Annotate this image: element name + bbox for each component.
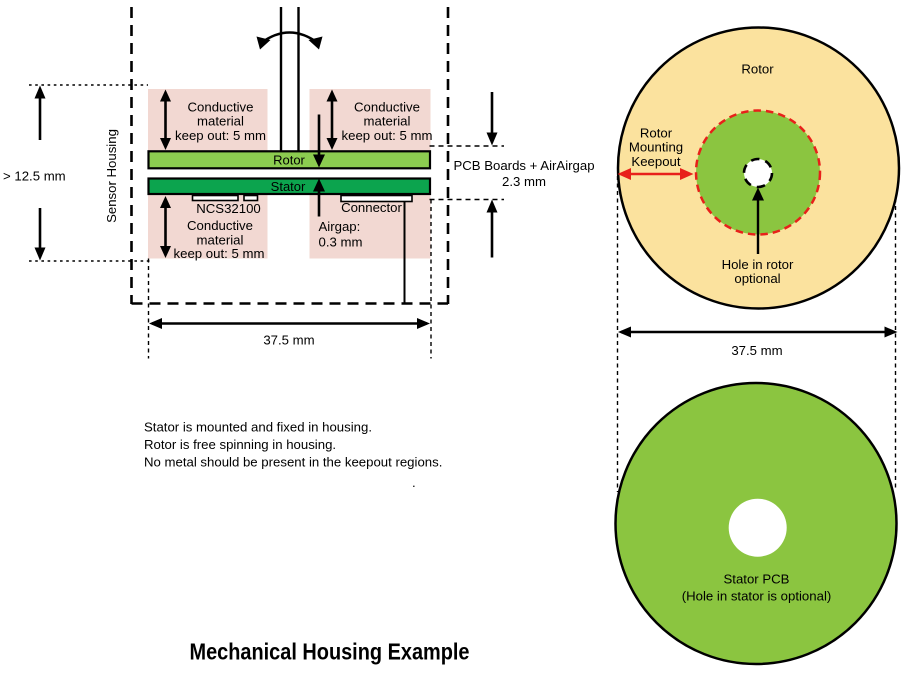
svg-text:Conductive: Conductive xyxy=(188,99,254,114)
svg-text:0.3 mm: 0.3 mm xyxy=(319,235,363,250)
svg-text:NCS32100: NCS32100 xyxy=(196,201,261,216)
svg-text:2.3 mm: 2.3 mm xyxy=(502,174,546,189)
svg-text:37.5 mm: 37.5 mm xyxy=(263,333,314,348)
svg-text:Stator is mounted and fixed in: Stator is mounted and fixed in housing. xyxy=(144,420,372,435)
svg-text:optional: optional xyxy=(734,271,780,286)
svg-text:> 12.5 mm: > 12.5 mm xyxy=(3,169,66,184)
svg-text:Stator: Stator xyxy=(271,179,306,194)
svg-text:material: material xyxy=(197,232,244,247)
svg-text:material: material xyxy=(197,114,244,129)
svg-text:Rotor: Rotor xyxy=(640,126,673,141)
svg-text:PCB Boards + AirAirgap: PCB Boards + AirAirgap xyxy=(453,158,594,173)
svg-text:Rotor: Rotor xyxy=(273,152,305,167)
svg-text:Keepout: Keepout xyxy=(631,154,680,169)
svg-text:Hole in rotor: Hole in rotor xyxy=(722,257,794,272)
svg-text:Connector: Connector xyxy=(341,200,402,215)
svg-text:Mechanical Housing Example: Mechanical Housing Example xyxy=(190,639,470,665)
svg-text:Mounting: Mounting xyxy=(629,140,683,155)
svg-text:keep out: 5 mm: keep out: 5 mm xyxy=(174,246,265,261)
svg-text:Conductive: Conductive xyxy=(187,218,253,233)
svg-text:material: material xyxy=(364,114,411,129)
svg-text:No metal should be present in: No metal should be present in the keepou… xyxy=(144,455,442,470)
svg-text:Airgap:: Airgap: xyxy=(319,219,361,234)
svg-text:37.5 mm: 37.5 mm xyxy=(731,343,782,358)
svg-text:Sensor Housing: Sensor Housing xyxy=(104,129,119,223)
svg-text:keep out: 5 mm: keep out: 5 mm xyxy=(342,128,433,143)
svg-text:Rotor is free spinning in hous: Rotor is free spinning in housing. xyxy=(144,437,336,452)
svg-text:keep out: 5 mm: keep out: 5 mm xyxy=(175,128,266,143)
svg-text:Stator PCB: Stator PCB xyxy=(724,571,790,586)
svg-text:Conductive: Conductive xyxy=(354,99,420,114)
svg-text:.: . xyxy=(412,475,416,490)
svg-text:Rotor: Rotor xyxy=(741,62,774,77)
svg-text:(Hole in stator is optional): (Hole in stator is optional) xyxy=(682,589,832,604)
